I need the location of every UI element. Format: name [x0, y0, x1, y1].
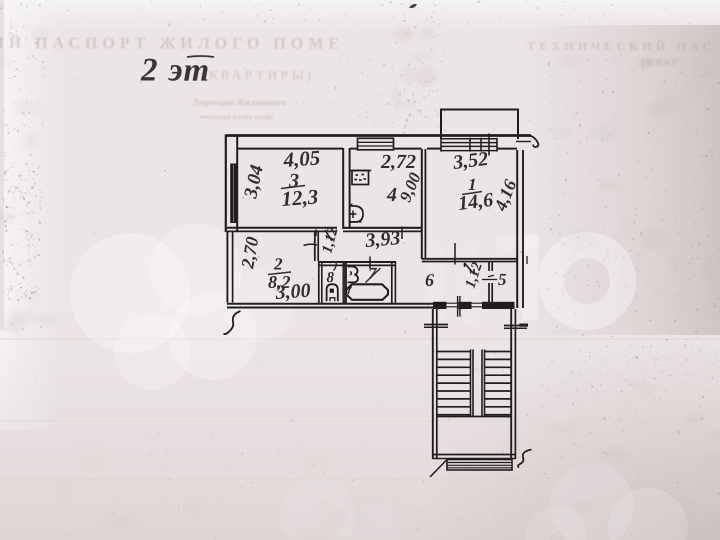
svg-text:3,52: 3,52	[451, 148, 489, 174]
svg-text:2: 2	[273, 254, 283, 273]
svg-text:4,05: 4,05	[282, 145, 321, 172]
svg-text:Дирекция Жилищного: Дирекция Жилищного	[193, 97, 287, 107]
svg-text:12,3: 12,3	[281, 184, 319, 211]
svg-text:8: 8	[326, 270, 334, 286]
svg-text:2 эт: 2 эт	[140, 52, 211, 88]
svg-text:(КВАР: (КВАР	[642, 58, 679, 69]
svg-text:3,00: 3,00	[274, 280, 311, 304]
svg-text:6: 6	[425, 270, 434, 290]
svg-text:3,93: 3,93	[364, 227, 402, 252]
svg-text:милиция пооба одоба: милиция пооба одоба	[200, 113, 273, 121]
svg-text:(КВАРТИРЫ): (КВАРТИРЫ)	[201, 68, 315, 82]
svg-text:5: 5	[498, 270, 507, 289]
svg-text:14,6: 14,6	[457, 189, 494, 215]
svg-text:ТЕХНИЧЕСКИЙ ПАС: ТЕХНИЧЕСКИЙ ПАС	[527, 39, 715, 53]
svg-text:4: 4	[386, 184, 397, 206]
svg-text:2,72: 2,72	[380, 151, 416, 173]
svg-text:ЫЙ ПАСПОРТ ЖИЛОГО ПОМЕ: ЫЙ ПАСПОРТ ЖИЛОГО ПОМЕ	[0, 33, 344, 53]
